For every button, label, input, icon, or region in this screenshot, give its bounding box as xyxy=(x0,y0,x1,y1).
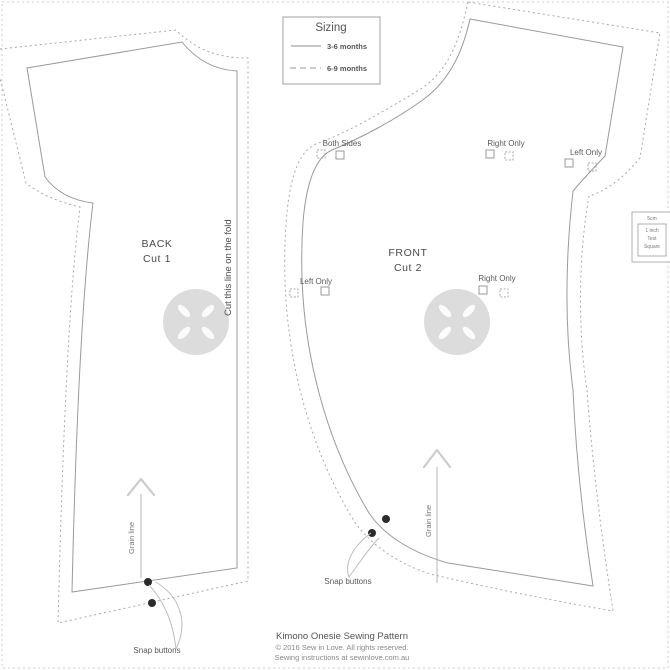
snap-button-dot xyxy=(382,515,390,523)
snap-square-solid xyxy=(486,150,494,158)
legend-solid-label: 3-6 months xyxy=(327,42,367,51)
test-square-word2: Square xyxy=(644,244,660,250)
front-piece-name: FRONT xyxy=(388,247,427,259)
marker-right-only-top-label: Right Only xyxy=(487,139,524,148)
snap-square-dashed xyxy=(290,289,298,297)
snap-pointer-curve xyxy=(149,582,182,649)
marker-left-only-top-label: Left Only xyxy=(570,148,602,157)
snap-square-solid xyxy=(336,151,344,159)
test-square-word1: Test xyxy=(647,236,657,242)
test-square: 5cm 1 inch Test Square xyxy=(632,212,670,262)
snap-square-solid xyxy=(321,287,329,295)
watermark-logo-front xyxy=(424,289,490,355)
back-grain-line: Grain line xyxy=(127,479,154,578)
footer: Kimono Onesie Sewing Pattern © 2016 Sew … xyxy=(275,631,410,662)
back-piece-name: BACK xyxy=(142,238,173,250)
front-snap-label: Snap buttons xyxy=(324,577,371,586)
legend-dashed-label: 6-9 months xyxy=(327,64,367,73)
snap-square-dashed xyxy=(505,152,513,160)
snap-button-dot xyxy=(148,599,156,607)
marker-right-only-top: Right Only xyxy=(486,139,525,160)
snap-square-solid xyxy=(479,286,487,294)
snap-pointer-curve xyxy=(348,533,379,577)
snap-square-dashed xyxy=(317,150,325,158)
marker-left-only-mid: Left Only xyxy=(290,277,332,297)
front-snap-buttons: Snap buttons xyxy=(324,515,390,586)
front-grain-line: Grain line xyxy=(424,450,450,583)
back-snap-label: Snap buttons xyxy=(133,646,180,655)
grain-arrow-icon xyxy=(128,479,154,495)
sizing-legend-title: Sizing xyxy=(315,22,346,34)
test-square-inch-label: 1 inch xyxy=(645,228,659,234)
footer-instructions: Sewing instructions at sewinlove.com.au xyxy=(275,653,410,662)
back-snap-buttons: Snap buttons xyxy=(133,578,182,655)
sizing-legend: Sizing 3-6 months 6-9 months xyxy=(283,17,380,84)
front-piece-cut: Cut 2 xyxy=(394,262,422,274)
back-grain-label: Grain line xyxy=(127,522,136,554)
back-piece-cut: Cut 1 xyxy=(143,253,171,265)
marker-both-sides-label: Both Sides xyxy=(323,139,362,148)
snap-square-solid xyxy=(565,159,573,167)
fold-line-note: Cut this line on the fold xyxy=(223,219,234,316)
footer-title: Kimono Onesie Sewing Pattern xyxy=(276,631,408,642)
snap-square-dashed xyxy=(500,289,508,297)
watermark-logo-back xyxy=(163,289,229,355)
marker-left-only-top: Left Only xyxy=(565,148,602,171)
marker-right-only-mid: Right Only xyxy=(478,274,515,297)
snap-button-dot xyxy=(144,578,152,586)
footer-copyright: © 2016 Sew in Love. All rights reserved. xyxy=(275,643,408,652)
grain-arrow-icon xyxy=(424,450,450,467)
snap-button-dot xyxy=(368,529,376,537)
marker-right-only-mid-label: Right Only xyxy=(478,274,515,283)
test-square-cm-label: 5cm xyxy=(647,216,656,222)
pattern-canvas: Sizing 3-6 months 6-9 months BACK Cut 1 … xyxy=(0,0,670,670)
marker-left-only-mid-label: Left Only xyxy=(300,277,332,286)
front-grain-label: Grain line xyxy=(424,505,433,537)
